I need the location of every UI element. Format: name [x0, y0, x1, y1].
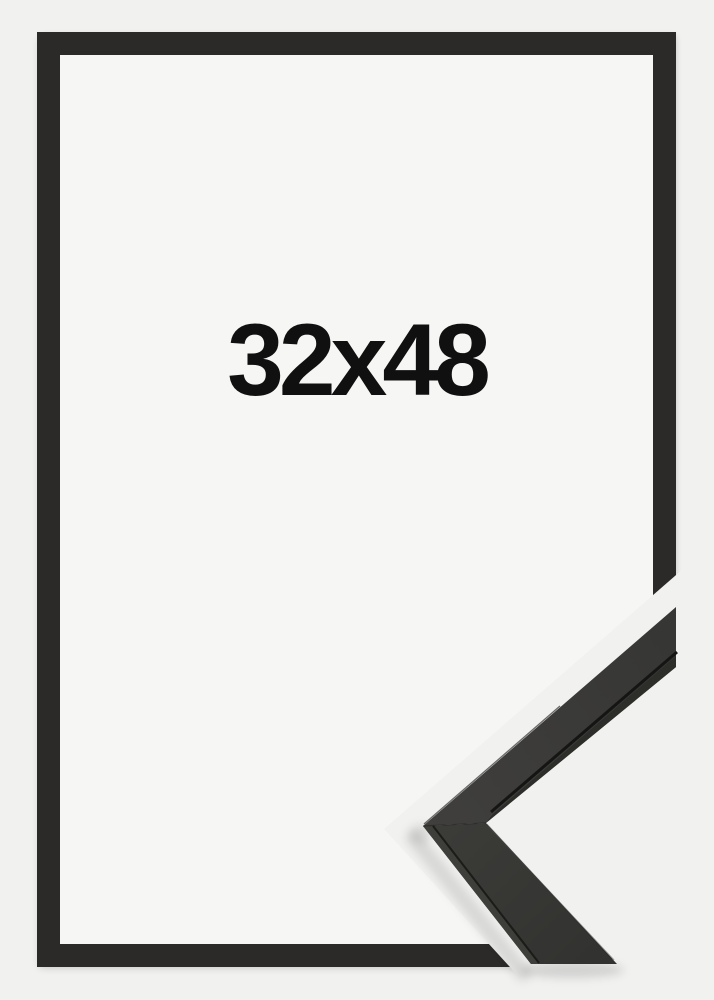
size-label: 32x48: [37, 309, 676, 411]
product-image: 32x48: [0, 0, 714, 1000]
picture-frame: [37, 32, 676, 967]
